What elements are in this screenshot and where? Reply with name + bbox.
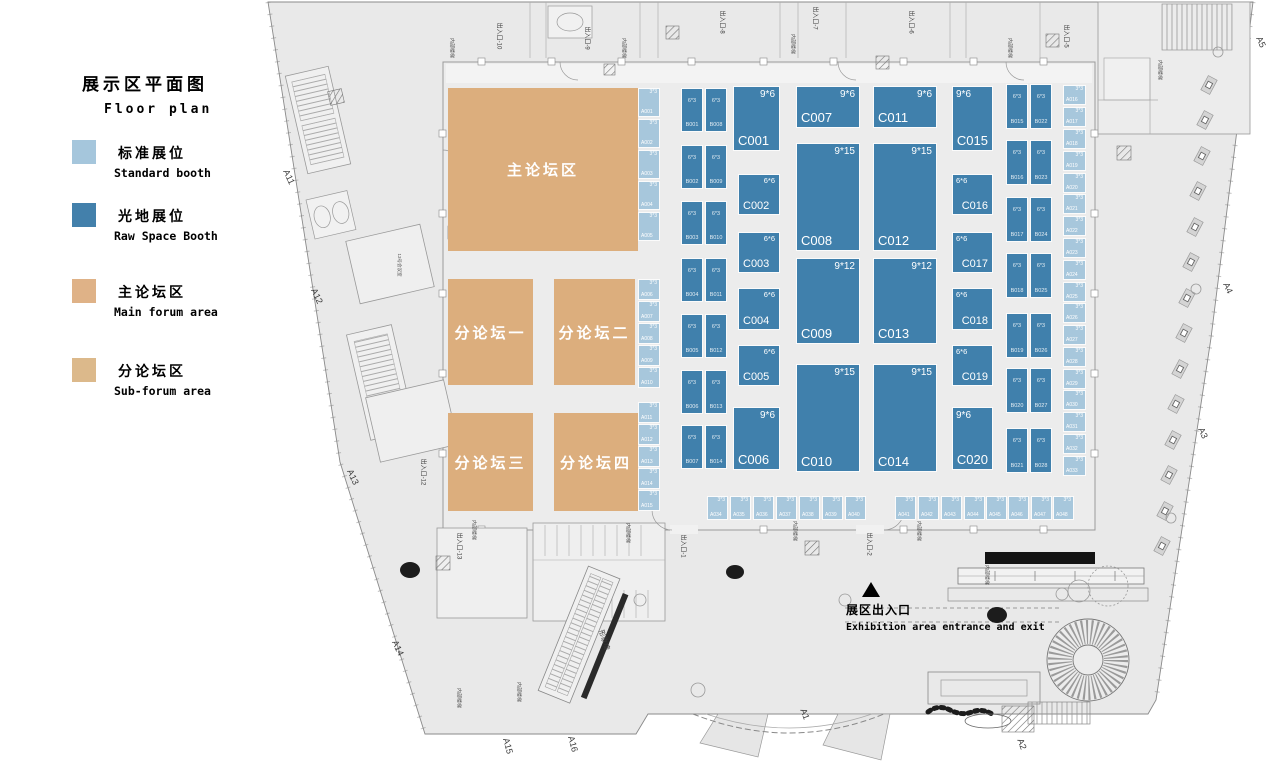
entrance-triangle-icon bbox=[862, 582, 880, 597]
main-forum-swatch bbox=[72, 279, 96, 303]
booth-size: 6*3 bbox=[706, 435, 726, 441]
plan-label-出入口-5: 出入口-5 bbox=[1063, 24, 1072, 47]
booth-id: C003 bbox=[743, 258, 769, 270]
booth-id: B005 bbox=[682, 348, 702, 354]
booth-id: C020 bbox=[957, 453, 988, 467]
booth-id: C005 bbox=[743, 371, 769, 383]
booth-id: A039 bbox=[825, 513, 837, 518]
booth-size: 3*3 bbox=[928, 498, 936, 503]
booth-size: 3*3 bbox=[649, 404, 657, 409]
booth-id: B009 bbox=[706, 179, 726, 185]
booth-id: A003 bbox=[641, 172, 653, 177]
plan-label-出入口-6: 出入口-6 bbox=[908, 10, 917, 33]
plan-label-13号会议室: 13号会议室 bbox=[396, 253, 402, 276]
booth-size: 9*6 bbox=[760, 89, 775, 100]
booth-size: 6*3 bbox=[1007, 323, 1027, 329]
booth-id: C017 bbox=[962, 258, 988, 270]
booth-A017: 3*3A017 bbox=[1063, 107, 1086, 127]
booth-A028: 3*3A028 bbox=[1063, 347, 1086, 367]
booth-size: 6*3 bbox=[706, 211, 726, 217]
booth-size: 3*3 bbox=[1075, 262, 1083, 267]
legend-label-en: Standard booth bbox=[114, 166, 211, 180]
booth-C017: 6*6C017 bbox=[952, 232, 993, 273]
booth-C013: 9*12C013 bbox=[873, 258, 937, 344]
booth-size: 6*3 bbox=[706, 268, 726, 274]
booth-id: A018 bbox=[1066, 142, 1078, 147]
booth-id: A034 bbox=[710, 513, 722, 518]
booth-id: A031 bbox=[1066, 425, 1078, 430]
booth-id: A013 bbox=[641, 460, 653, 465]
booth-id: A014 bbox=[641, 482, 653, 487]
plan-label-出入口-2: 出入口-2 bbox=[866, 532, 875, 555]
booth-A039: 3*3A039 bbox=[822, 496, 843, 520]
booth-C014: 9*15C014 bbox=[873, 364, 937, 472]
booth-id: A006 bbox=[641, 293, 653, 298]
booth-A030: 3*3A030 bbox=[1063, 390, 1086, 410]
booth-id: A026 bbox=[1066, 316, 1078, 321]
booth-id: B016 bbox=[1007, 175, 1027, 181]
booth-A035: 3*3A035 bbox=[730, 496, 751, 520]
plan-label-A15: A15 bbox=[501, 737, 515, 755]
booth-B008: 6*3B008 bbox=[705, 88, 727, 132]
booth-C010: 9*15C010 bbox=[796, 364, 860, 472]
booth-B002: 6*3B002 bbox=[681, 145, 703, 189]
forum-area-分论坛二: 分论坛二 bbox=[554, 279, 635, 385]
booth-A044: 3*3A044 bbox=[964, 496, 985, 520]
booth-B023: 6*3B023 bbox=[1030, 140, 1052, 185]
forum-area-主论坛区: 主论坛区 bbox=[448, 88, 638, 251]
booth-id: B019 bbox=[1007, 348, 1027, 354]
plan-label-出入口-10: 出入口-10 bbox=[496, 23, 505, 50]
booth-id: A023 bbox=[1066, 251, 1078, 256]
booth-size: 3*3 bbox=[1075, 131, 1083, 136]
booth-A005: 3*3A005 bbox=[638, 212, 660, 241]
booth-A024: 3*3A024 bbox=[1063, 260, 1086, 280]
booth-size: 3*3 bbox=[1075, 196, 1083, 201]
booth-id: C006 bbox=[738, 453, 769, 467]
booth-C002: 6*6C002 bbox=[738, 174, 780, 215]
booth-A034: 3*3A034 bbox=[707, 496, 728, 520]
booth-id: A024 bbox=[1066, 273, 1078, 278]
booth-size: 3*3 bbox=[1075, 436, 1083, 441]
booth-id: A022 bbox=[1066, 229, 1078, 234]
booth-A032: 3*3A032 bbox=[1063, 434, 1086, 454]
booth-size: 3*3 bbox=[1075, 218, 1083, 223]
booth-A036: 3*3A036 bbox=[753, 496, 774, 520]
booth-B015: 6*3B015 bbox=[1006, 84, 1028, 129]
booth-A040: 3*3A040 bbox=[845, 496, 866, 520]
plan-title-zh: 展示区平面图 bbox=[82, 70, 208, 95]
booth-size: 6*3 bbox=[682, 380, 702, 386]
booth-id: B015 bbox=[1007, 119, 1027, 125]
booth-size: 3*3 bbox=[1075, 240, 1083, 245]
booth-id: A046 bbox=[1011, 513, 1023, 518]
booth-size: 6*6 bbox=[956, 348, 967, 356]
booth-A012: 3*3A012 bbox=[638, 424, 660, 445]
booth-id: B013 bbox=[706, 404, 726, 410]
entrance-marker-block: 展区出入口 Exhibition area entrance and exit bbox=[846, 582, 1045, 633]
booth-id: C007 bbox=[801, 111, 832, 125]
booth-size: 3*3 bbox=[649, 325, 657, 330]
booth-A006: 3*3A006 bbox=[638, 279, 660, 300]
legend-label-en: Raw Space Booth bbox=[114, 229, 218, 243]
booth-B026: 6*3B026 bbox=[1030, 313, 1052, 358]
plan-label-内部楼梯: 内部楼梯 bbox=[625, 523, 632, 543]
booth-id: A045 bbox=[989, 513, 1001, 518]
booth-size: 3*3 bbox=[1075, 414, 1083, 419]
forum-label: 分论坛二 bbox=[558, 322, 630, 343]
booth-size: 9*6 bbox=[956, 410, 971, 421]
booth-size: 9*15 bbox=[911, 367, 932, 378]
booth-size: 6*3 bbox=[682, 155, 702, 161]
booth-id: B028 bbox=[1031, 463, 1051, 469]
booth-id: B022 bbox=[1031, 119, 1051, 125]
booth-size: 3*3 bbox=[649, 492, 657, 497]
booth-size: 9*6 bbox=[760, 410, 775, 421]
booth-size: 3*3 bbox=[763, 498, 771, 503]
legend-label-en: Sub-forum area bbox=[114, 384, 211, 398]
booth-A023: 3*3A023 bbox=[1063, 238, 1086, 258]
booth-A037: 3*3A037 bbox=[776, 496, 797, 520]
booth-B024: 6*3B024 bbox=[1030, 197, 1052, 242]
booth-B025: 6*3B025 bbox=[1030, 253, 1052, 298]
booth-B014: 6*3B014 bbox=[705, 425, 727, 469]
booth-A027: 3*3A027 bbox=[1063, 325, 1086, 345]
booth-size: 6*3 bbox=[682, 98, 702, 104]
booth-size: 3*3 bbox=[1075, 305, 1083, 310]
booth-id: B027 bbox=[1031, 403, 1051, 409]
booth-A008: 3*3A008 bbox=[638, 323, 660, 344]
booth-id: A025 bbox=[1066, 295, 1078, 300]
booth-C020: 9*6C020 bbox=[952, 407, 993, 470]
booth-A016: 3*3A016 bbox=[1063, 85, 1086, 105]
plan-label-A16: A16 bbox=[566, 735, 580, 753]
booth-size: 6*3 bbox=[706, 324, 726, 330]
booth-size: 6*3 bbox=[682, 435, 702, 441]
booth-id: A041 bbox=[898, 513, 910, 518]
booth-size: 3*3 bbox=[1075, 175, 1083, 180]
booth-size: 9*12 bbox=[911, 261, 932, 272]
plan-label-A13: A13 bbox=[345, 468, 361, 487]
booth-B022: 6*3B022 bbox=[1030, 84, 1052, 129]
plan-label-A5: A5 bbox=[1254, 35, 1268, 49]
booth-id: C001 bbox=[738, 134, 769, 148]
booth-id: C009 bbox=[801, 327, 832, 341]
booth-A019: 3*3A019 bbox=[1063, 151, 1086, 171]
booth-B003: 6*3B003 bbox=[681, 201, 703, 245]
booth-size: 3*3 bbox=[1075, 349, 1083, 354]
booth-A038: 3*3A038 bbox=[799, 496, 820, 520]
booth-id: B003 bbox=[682, 235, 702, 241]
booth-id: B008 bbox=[706, 122, 726, 128]
booth-A007: 3*3A007 bbox=[638, 301, 660, 322]
plan-label-A11: A11 bbox=[281, 168, 297, 186]
forum-area-分论坛四: 分论坛四 bbox=[554, 413, 638, 511]
booth-id: B024 bbox=[1031, 232, 1051, 238]
booth-id: C010 bbox=[801, 455, 832, 469]
booth-id: B018 bbox=[1007, 288, 1027, 294]
booth-size: 6*3 bbox=[1031, 207, 1051, 213]
booth-id: A047 bbox=[1034, 513, 1046, 518]
plan-label-出入口-8: 出入口-8 bbox=[719, 10, 728, 33]
booth-B006: 6*3B006 bbox=[681, 370, 703, 414]
booth-size: 6*3 bbox=[706, 380, 726, 386]
booth-size: 6*6 bbox=[764, 177, 775, 185]
booth-B027: 6*3B027 bbox=[1030, 368, 1052, 413]
booth-size: 6*3 bbox=[706, 155, 726, 161]
booth-id: C002 bbox=[743, 200, 769, 212]
booth-B016: 6*3B016 bbox=[1006, 140, 1028, 185]
plan-label-出入口-1: 出入口-1 bbox=[680, 534, 689, 557]
booth-id: A048 bbox=[1056, 513, 1068, 518]
booth-size: 3*3 bbox=[649, 281, 657, 286]
booth-id: C004 bbox=[743, 315, 769, 327]
booth-id: B011 bbox=[706, 292, 726, 298]
booth-size: 6*6 bbox=[764, 235, 775, 243]
booth-id: B002 bbox=[682, 179, 702, 185]
booth-A021: 3*3A021 bbox=[1063, 194, 1086, 214]
booth-B020: 6*3B020 bbox=[1006, 368, 1028, 413]
booth-id: A002 bbox=[641, 141, 653, 146]
booth-A045: 3*3A045 bbox=[986, 496, 1007, 520]
booth-C008: 9*15C008 bbox=[796, 143, 860, 251]
booth-B010: 6*3B010 bbox=[705, 201, 727, 245]
booth-A003: 3*3A003 bbox=[638, 150, 660, 179]
booth-size: 9*15 bbox=[834, 367, 855, 378]
booth-C007: 9*6C007 bbox=[796, 86, 860, 128]
booth-A011: 3*3A011 bbox=[638, 402, 660, 423]
booth-size: 6*3 bbox=[1007, 94, 1027, 100]
booth-id: A043 bbox=[944, 513, 956, 518]
booth-size: 6*6 bbox=[764, 291, 775, 299]
entrance-label-en: Exhibition area entrance and exit bbox=[846, 622, 1045, 633]
plan-label-A2: A2 bbox=[1015, 737, 1028, 751]
booth-id: A032 bbox=[1066, 447, 1078, 452]
plan-label-形象墙: 形象墙 bbox=[596, 628, 612, 651]
plan-label-内部楼梯: 内部楼梯 bbox=[916, 521, 923, 541]
booth-B019: 6*3B019 bbox=[1006, 313, 1028, 358]
forum-area-分论坛三: 分论坛三 bbox=[448, 413, 533, 511]
booth-size: 3*3 bbox=[649, 369, 657, 374]
booth-C015: 9*6C015 bbox=[952, 86, 993, 151]
booth-id: A030 bbox=[1066, 403, 1078, 408]
booth-C003: 6*6C003 bbox=[738, 232, 780, 273]
booth-id: C013 bbox=[878, 327, 909, 341]
booth-size: 3*3 bbox=[855, 498, 863, 503]
booth-id: B006 bbox=[682, 404, 702, 410]
plan-label-内部楼梯: 内部楼梯 bbox=[471, 520, 478, 540]
booth-C012: 9*15C012 bbox=[873, 143, 937, 251]
standard-booth-swatch bbox=[72, 140, 96, 164]
booth-size: 9*12 bbox=[834, 261, 855, 272]
booth-size: 3*3 bbox=[996, 498, 1004, 503]
plan-label-A12: A12 bbox=[309, 287, 325, 306]
booth-size: 6*3 bbox=[1031, 94, 1051, 100]
booth-size: 6*3 bbox=[682, 268, 702, 274]
booth-size: 6*6 bbox=[764, 348, 775, 356]
booth-B007: 6*3B007 bbox=[681, 425, 703, 469]
booth-B005: 6*3B005 bbox=[681, 314, 703, 358]
booth-id: B010 bbox=[706, 235, 726, 241]
booth-A022: 3*3A022 bbox=[1063, 216, 1086, 236]
booth-B017: 6*3B017 bbox=[1006, 197, 1028, 242]
booth-A031: 3*3A031 bbox=[1063, 412, 1086, 432]
booth-A013: 3*3A013 bbox=[638, 446, 660, 467]
booth-id: A035 bbox=[733, 513, 745, 518]
booth-id: C012 bbox=[878, 234, 909, 248]
booth-size: 6*3 bbox=[682, 324, 702, 330]
booth-id: C018 bbox=[962, 315, 988, 327]
booth-A014: 3*3A014 bbox=[638, 468, 660, 489]
booth-id: A028 bbox=[1066, 360, 1078, 365]
booth-A025: 3*3A025 bbox=[1063, 282, 1086, 302]
booth-id: C019 bbox=[962, 371, 988, 383]
booth-size: 3*3 bbox=[1075, 284, 1083, 289]
booth-id: B001 bbox=[682, 122, 702, 128]
booth-size: 6*6 bbox=[956, 235, 967, 243]
booth-size: 3*3 bbox=[649, 152, 657, 157]
booth-size: 3*3 bbox=[649, 121, 657, 126]
booth-size: 6*3 bbox=[1031, 378, 1051, 384]
booth-A010: 3*3A010 bbox=[638, 367, 660, 388]
booth-size: 6*3 bbox=[706, 98, 726, 104]
booth-id: A009 bbox=[641, 359, 653, 364]
booth-B004: 6*3B004 bbox=[681, 258, 703, 302]
entrance-label-zh: 展区出入口 bbox=[846, 601, 1045, 618]
plan-label-内部楼梯: 内部楼梯 bbox=[790, 34, 797, 54]
booth-C018: 6*6C018 bbox=[952, 288, 993, 330]
booth-id: A040 bbox=[848, 513, 860, 518]
booth-size: 6*3 bbox=[1031, 150, 1051, 156]
booth-size: 9*6 bbox=[917, 89, 932, 100]
booth-size: 6*3 bbox=[1031, 438, 1051, 444]
booth-A033: 3*3A033 bbox=[1063, 456, 1086, 476]
booth-size: 6*6 bbox=[956, 177, 967, 185]
booth-size: 3*3 bbox=[649, 448, 657, 453]
booth-id: C016 bbox=[962, 200, 988, 212]
plan-label-A4: A4 bbox=[1221, 281, 1235, 295]
booth-size: 3*3 bbox=[1075, 371, 1083, 376]
plan-label-A14: A14 bbox=[390, 639, 406, 658]
booth-id: A033 bbox=[1066, 469, 1078, 474]
booth-size: 9*6 bbox=[956, 89, 971, 100]
booth-size: 3*3 bbox=[832, 498, 840, 503]
forum-label: 分论坛三 bbox=[454, 452, 526, 473]
booth-id: B017 bbox=[1007, 232, 1027, 238]
booth-A026: 3*3A026 bbox=[1063, 303, 1086, 323]
booth-id: A011 bbox=[641, 416, 652, 421]
plan-label-出入口-7: 出入口-7 bbox=[812, 6, 821, 29]
booth-A029: 3*3A029 bbox=[1063, 369, 1086, 389]
booth-size: 3*3 bbox=[1075, 327, 1083, 332]
booth-size: 3*3 bbox=[809, 498, 817, 503]
booth-size: 3*3 bbox=[1075, 458, 1083, 463]
legend: 展示区平面图 Floor plan 标准展位 Standard booth 光地… bbox=[60, 58, 280, 438]
booth-size: 3*3 bbox=[649, 347, 657, 352]
booth-size: 3*3 bbox=[649, 183, 657, 188]
booth-B021: 6*3B021 bbox=[1006, 428, 1028, 473]
booth-id: B026 bbox=[1031, 348, 1051, 354]
booth-size: 3*3 bbox=[740, 498, 748, 503]
booth-size: 3*3 bbox=[649, 303, 657, 308]
booth-B009: 6*3B009 bbox=[705, 145, 727, 189]
booth-A009: 3*3A009 bbox=[638, 345, 660, 366]
booth-size: 3*3 bbox=[1075, 153, 1083, 158]
forum-label: 主论坛区 bbox=[507, 159, 579, 180]
booth-C006: 9*6C006 bbox=[733, 407, 780, 470]
booth-size: 3*3 bbox=[1075, 392, 1083, 397]
booth-size: 3*3 bbox=[951, 498, 959, 503]
booth-size: 3*3 bbox=[649, 426, 657, 431]
sub-forum-swatch bbox=[72, 358, 96, 382]
booth-B028: 6*3B028 bbox=[1030, 428, 1052, 473]
raw-space-booth-swatch bbox=[72, 203, 96, 227]
booth-A041: 3*3A041 bbox=[895, 496, 916, 520]
booth-id: C015 bbox=[957, 134, 988, 148]
booth-size: 9*15 bbox=[911, 146, 932, 157]
booth-id: B023 bbox=[1031, 175, 1051, 181]
booth-size: 3*3 bbox=[786, 498, 794, 503]
booth-id: A027 bbox=[1066, 338, 1078, 343]
booth-id: A036 bbox=[756, 513, 768, 518]
plan-label-出入口-13: 出入口-13 bbox=[456, 533, 465, 560]
booth-id: A017 bbox=[1066, 120, 1078, 125]
booth-size: 3*3 bbox=[649, 470, 657, 475]
forum-label: 分论坛四 bbox=[560, 452, 632, 473]
booth-A015: 3*3A015 bbox=[638, 490, 660, 511]
forum-area-分论坛一: 分论坛一 bbox=[448, 279, 533, 385]
booth-C004: 6*6C004 bbox=[738, 288, 780, 330]
legend-label-en: Main forum area bbox=[114, 305, 218, 319]
booth-size: 9*6 bbox=[840, 89, 855, 100]
booth-size: 3*3 bbox=[717, 498, 725, 503]
booth-C009: 9*12C009 bbox=[796, 258, 860, 344]
plan-label-内部楼梯: 内部楼梯 bbox=[449, 38, 456, 58]
booth-id: A021 bbox=[1066, 207, 1078, 212]
booth-id: B004 bbox=[682, 292, 702, 298]
booth-C005: 6*6C005 bbox=[738, 345, 780, 386]
booth-size: 3*3 bbox=[1018, 498, 1026, 503]
booth-size: 6*3 bbox=[1031, 263, 1051, 269]
booth-size: 6*3 bbox=[682, 211, 702, 217]
booth-size: 3*3 bbox=[649, 214, 657, 219]
booth-size: 6*3 bbox=[1007, 150, 1027, 156]
booth-A047: 3*3A047 bbox=[1031, 496, 1052, 520]
booth-id: A012 bbox=[641, 438, 653, 443]
booth-id: C008 bbox=[801, 234, 832, 248]
booth-size: 3*3 bbox=[1041, 498, 1049, 503]
booth-A048: 3*3A048 bbox=[1053, 496, 1074, 520]
booth-B013: 6*3B013 bbox=[705, 370, 727, 414]
booth-id: A004 bbox=[641, 203, 653, 208]
booth-id: A038 bbox=[802, 513, 814, 518]
legend-label-zh: 标准展位 bbox=[118, 143, 186, 163]
booth-id: A019 bbox=[1066, 164, 1078, 169]
booth-id: A042 bbox=[921, 513, 933, 518]
plan-label-内部楼梯: 内部楼梯 bbox=[1157, 60, 1164, 80]
booth-A020: 3*3A020 bbox=[1063, 173, 1086, 193]
booth-id: A015 bbox=[641, 504, 653, 509]
booth-id: B014 bbox=[706, 459, 726, 465]
booth-A043: 3*3A043 bbox=[941, 496, 962, 520]
booth-id: A001 bbox=[641, 110, 653, 115]
booth-C019: 6*6C019 bbox=[952, 345, 993, 386]
legend-label-zh: 光地展位 bbox=[118, 206, 186, 226]
booth-B001: 6*3B001 bbox=[681, 88, 703, 132]
plan-label-内部楼梯: 内部楼梯 bbox=[516, 682, 523, 702]
legend-label-zh: 主论坛区 bbox=[118, 282, 186, 302]
booth-C016: 6*6C016 bbox=[952, 174, 993, 215]
